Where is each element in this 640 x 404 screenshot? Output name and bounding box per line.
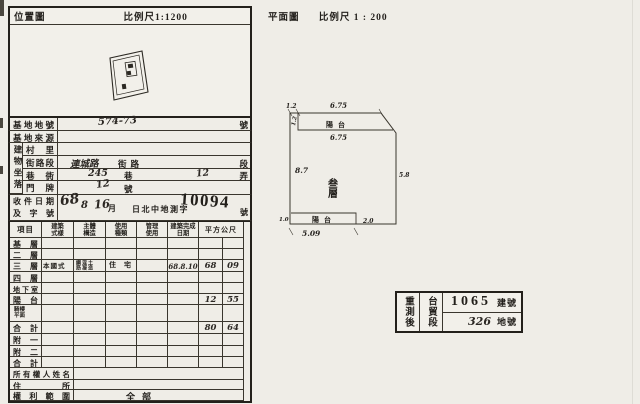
table-cell (223, 272, 244, 283)
village-label: 村里 (23, 143, 58, 155)
total-sqm-dec-cell: 64 (223, 322, 244, 334)
table-cell (137, 238, 168, 249)
floor3-style-stamp: 本國式 (42, 261, 66, 270)
street-label: 街路段 (23, 156, 58, 168)
site-lot-number-label: 基地地號 (10, 118, 58, 130)
header-style: 建築式樣 (42, 222, 74, 238)
table-cell (168, 283, 199, 294)
table-cell (106, 357, 137, 368)
balcony-sqm-dec: 55 (223, 294, 243, 305)
section-name-label: 台貿段 (420, 293, 443, 331)
table-cell (137, 334, 168, 346)
table-cell (223, 283, 244, 294)
resurvey-label: 重測後 (397, 293, 420, 331)
site-source-row: 基地來源 (8, 131, 252, 143)
row-address-label: 住所 (10, 380, 74, 390)
floor3-use-stamp: 住宅 (106, 260, 137, 269)
row-total-label: 合計 (10, 322, 42, 334)
rights-scope-stamp: 全部 (126, 390, 158, 401)
building-survey-form: 位置圖 比例尺1:1200 (8, 6, 252, 404)
table-cell (137, 294, 168, 305)
total-sqm-int: 80 (199, 322, 222, 333)
table-cell (42, 272, 74, 283)
street-row: 街路段 連城路 街路 段 (23, 156, 250, 169)
building-number-row: 1065 建號 (443, 293, 521, 313)
village-row: 村里 (23, 143, 250, 156)
balcony-sqm-dec-cell: 55 (223, 294, 244, 305)
table-cell (223, 305, 244, 322)
table-cell (223, 249, 244, 260)
header-structure: 主體構造 (74, 222, 106, 238)
table-cell (42, 238, 74, 249)
dim-bottom-width: 5.09 (302, 229, 321, 238)
floor3-completed-value: 68.8.10 (168, 260, 198, 271)
dim-left-offset: 1.2 (291, 116, 299, 127)
balcony-top-stamp: 陽台 (326, 120, 350, 129)
site-source-value-area (58, 131, 250, 142)
receipt-number-unit: 號 (240, 207, 248, 218)
row-owner-name-label: 所有權人姓名 (10, 368, 74, 380)
table-cell (223, 334, 244, 346)
land-number-row: 326 地號 (443, 313, 521, 332)
receipt-label-line1: 收件日期 (13, 196, 54, 208)
header-completion-date: 建築完成日期 (168, 222, 199, 238)
table-cell (74, 346, 106, 357)
floor3-sqm-int-cell: 68 (199, 260, 223, 272)
table-cell (106, 249, 137, 260)
scan-edge-artifact (0, 166, 3, 174)
table-cell (137, 283, 168, 294)
table-cell (223, 346, 244, 357)
table-cell (42, 249, 74, 260)
site-lot-number-unit: 號 (239, 119, 248, 131)
land-number-unit: 地號 (497, 315, 517, 328)
floor3-structure-cell: 鋼筋混凝土造 (74, 260, 106, 272)
table-cell (74, 283, 106, 294)
table-cell (168, 305, 199, 322)
receipt-row: 收件日期 及字號 68 8 16 月 日北中地測字 10094 號 (8, 195, 252, 221)
table-cell (168, 238, 199, 249)
table-cell (223, 238, 244, 249)
table-cell (106, 238, 137, 249)
floor-plan-title: 平面圖 (268, 13, 300, 23)
header-item: 項目 (10, 222, 42, 238)
site-lot-number-row: 基地地號 574-73 號 (8, 118, 252, 131)
row-arcade-label: 騎樓平面 (14, 307, 27, 319)
dim-bottom-gap: 2.0 (362, 218, 374, 225)
scanned-survey-form: 位置圖 比例尺1:1200 (0, 0, 640, 404)
table-cell (137, 272, 168, 283)
floor-plan-drawing: 1.2 6.75 1.2 陽台 6.75 8.7 叁層 5.8 1.0 陽台 2… (278, 80, 438, 253)
table-cell (199, 305, 223, 322)
row-floor-base-label: 基層 (10, 238, 42, 249)
row-balcony-label: 陽台 (10, 294, 42, 305)
table-cell (168, 294, 199, 305)
header-square-meters: 平方公尺 (199, 222, 244, 238)
table-cell (168, 357, 199, 368)
row-basement-label: 地下室 (10, 283, 42, 294)
table-cell (137, 357, 168, 368)
lane-number-value: 245 (88, 168, 108, 179)
parcel-sketch (102, 48, 154, 111)
row-annex2-label: 附二 (10, 346, 42, 357)
building-number-value: 1065 (451, 294, 491, 310)
balcony-bottom-stamp: 陽台 (312, 215, 336, 224)
door-plate-unit: 號 (124, 183, 133, 195)
building-number-unit: 建號 (497, 296, 517, 309)
balcony-sqm-int-cell: 12 (199, 294, 223, 305)
table-cell (42, 305, 74, 322)
row-grand-total-label: 合計 (10, 357, 42, 368)
table-cell (199, 334, 223, 346)
scan-crease (632, 0, 633, 404)
table-cell (168, 249, 199, 260)
table-cell (199, 357, 223, 368)
rights-scope-value-cell: 全部 (74, 390, 244, 401)
receipt-value-area: 68 8 16 月 日北中地測字 10094 號 (58, 195, 250, 220)
total-sqm-int-cell: 80 (199, 322, 223, 334)
table-cell (74, 238, 106, 249)
location-map-box: 位置圖 比例尺1:1200 (8, 6, 252, 118)
site-source-label: 基地來源 (10, 131, 58, 142)
table-cell (106, 305, 137, 322)
dim-top-offset: 1.2 (286, 103, 296, 110)
receipt-month-value: 8 (81, 200, 88, 211)
door-plate-value: 12 (95, 178, 110, 191)
table-cell (137, 260, 168, 272)
receipt-number-stamp: 10094 (179, 189, 230, 212)
table-cell (199, 238, 223, 249)
row-rights-scope-label: 權利範圍 (10, 390, 74, 401)
table-cell (106, 272, 137, 283)
table-cell (42, 346, 74, 357)
table-cell (137, 249, 168, 260)
owner-name-value-cell (74, 368, 244, 380)
dim-left-height: 8.7 (295, 166, 309, 175)
table-cell (42, 322, 74, 334)
alley-number-value: 12 (195, 167, 209, 179)
site-lot-number-value-area: 574-73 號 (58, 118, 250, 130)
lane-alley-value-area: 245 巷 12 弄 (58, 169, 250, 180)
table-cell (106, 294, 137, 305)
building-data-table: 項目 建築式樣 主體構造 使用種類 管理使用 建築完成日期 平方公尺 基層 二層… (8, 221, 252, 403)
land-number-value: 326 (468, 315, 491, 328)
dim-bottom-strip-height: 1.0 (279, 217, 289, 223)
floor3-sqm-dec-cell: 09 (223, 260, 244, 272)
table-cell (42, 357, 74, 368)
table-cell (42, 283, 74, 294)
site-lot-number-value: 574-73 (98, 115, 137, 128)
village-value-area (58, 143, 250, 155)
floor3-sqm-int: 68 (199, 260, 222, 271)
table-cell (168, 346, 199, 357)
total-sqm-dec: 64 (223, 322, 243, 333)
table-cell (106, 283, 137, 294)
receipt-label: 收件日期 及字號 (10, 195, 58, 220)
table-cell (199, 249, 223, 260)
table-cell (223, 357, 244, 368)
header-management: 管理使用 (137, 222, 168, 238)
balcony-sqm-int: 12 (199, 294, 222, 305)
table-cell (42, 294, 74, 305)
row-arcade-label-cell: 騎樓平面 (10, 305, 42, 322)
dim-inner-width: 6.75 (330, 133, 347, 142)
table-cell (74, 272, 106, 283)
receipt-label-line2: 及字號 (13, 208, 54, 220)
scan-edge-artifact (0, 0, 4, 16)
floor3-structure-stamp: 鋼筋混凝土造 (74, 260, 92, 271)
building-location-group: 建物坐落 村里 街路段 連城路 街路 段 巷衖 24 (8, 143, 252, 194)
dim-top-width: 6.75 (330, 101, 347, 110)
table-cell (74, 305, 106, 322)
table-cell (137, 322, 168, 334)
floor3-use-cell: 住宅 (106, 260, 137, 272)
row-floor3-label: 三層 (10, 260, 42, 272)
table-cell (74, 249, 106, 260)
floor-plan-scale: 比例尺 1 : 200 (319, 13, 388, 23)
address-value-cell (74, 380, 244, 390)
table-cell (168, 322, 199, 334)
table-cell (42, 334, 74, 346)
floor-plan-header: 平面圖 比例尺 1 : 200 (268, 9, 388, 23)
row-floor4-label: 四層 (10, 272, 42, 283)
street-value-area: 連城路 街路 段 (58, 156, 250, 168)
table-cell (106, 346, 137, 357)
door-plate-label: 門牌 (23, 181, 58, 194)
table-cell (74, 294, 106, 305)
floor3-completed-cell: 68.8.10 (168, 260, 199, 272)
receipt-month-unit: 月 (108, 203, 116, 214)
table-cell (137, 305, 168, 322)
receipt-year-value: 68 (59, 191, 81, 210)
table-cell (168, 272, 199, 283)
table-cell (199, 283, 223, 294)
table-cell (74, 322, 106, 334)
header-use-type: 使用種類 (106, 222, 137, 238)
dim-right-height: 5.8 (399, 172, 410, 179)
scan-edge-artifact (0, 118, 3, 128)
lane-alley-row: 巷衖 245 巷 12 弄 (23, 169, 250, 181)
table-cell (74, 334, 106, 346)
resurvey-stamp-box: 重測後 台貿段 1065 建號 326 地號 (395, 291, 523, 333)
location-map-header: 位置圖 比例尺1:1200 (10, 8, 250, 25)
floor-stamp: 叁層 (326, 177, 339, 199)
building-location-group-label: 建物坐落 (10, 143, 23, 194)
table-cell (199, 346, 223, 357)
floor3-style-cell: 本國式 (42, 260, 74, 272)
table-cell (106, 322, 137, 334)
row-floor2-label: 二層 (10, 249, 42, 260)
table-cell (168, 334, 199, 346)
table-cell (74, 357, 106, 368)
table-cell (106, 334, 137, 346)
location-map-title: 位置圖 (10, 9, 46, 23)
table-cell (137, 346, 168, 357)
location-map-scale: 比例尺1:1200 (124, 9, 188, 23)
floor3-sqm-dec: 09 (223, 260, 243, 271)
lane-alley-label: 巷衖 (23, 169, 58, 180)
row-annex1-label: 附一 (10, 334, 42, 346)
table-cell (199, 272, 223, 283)
